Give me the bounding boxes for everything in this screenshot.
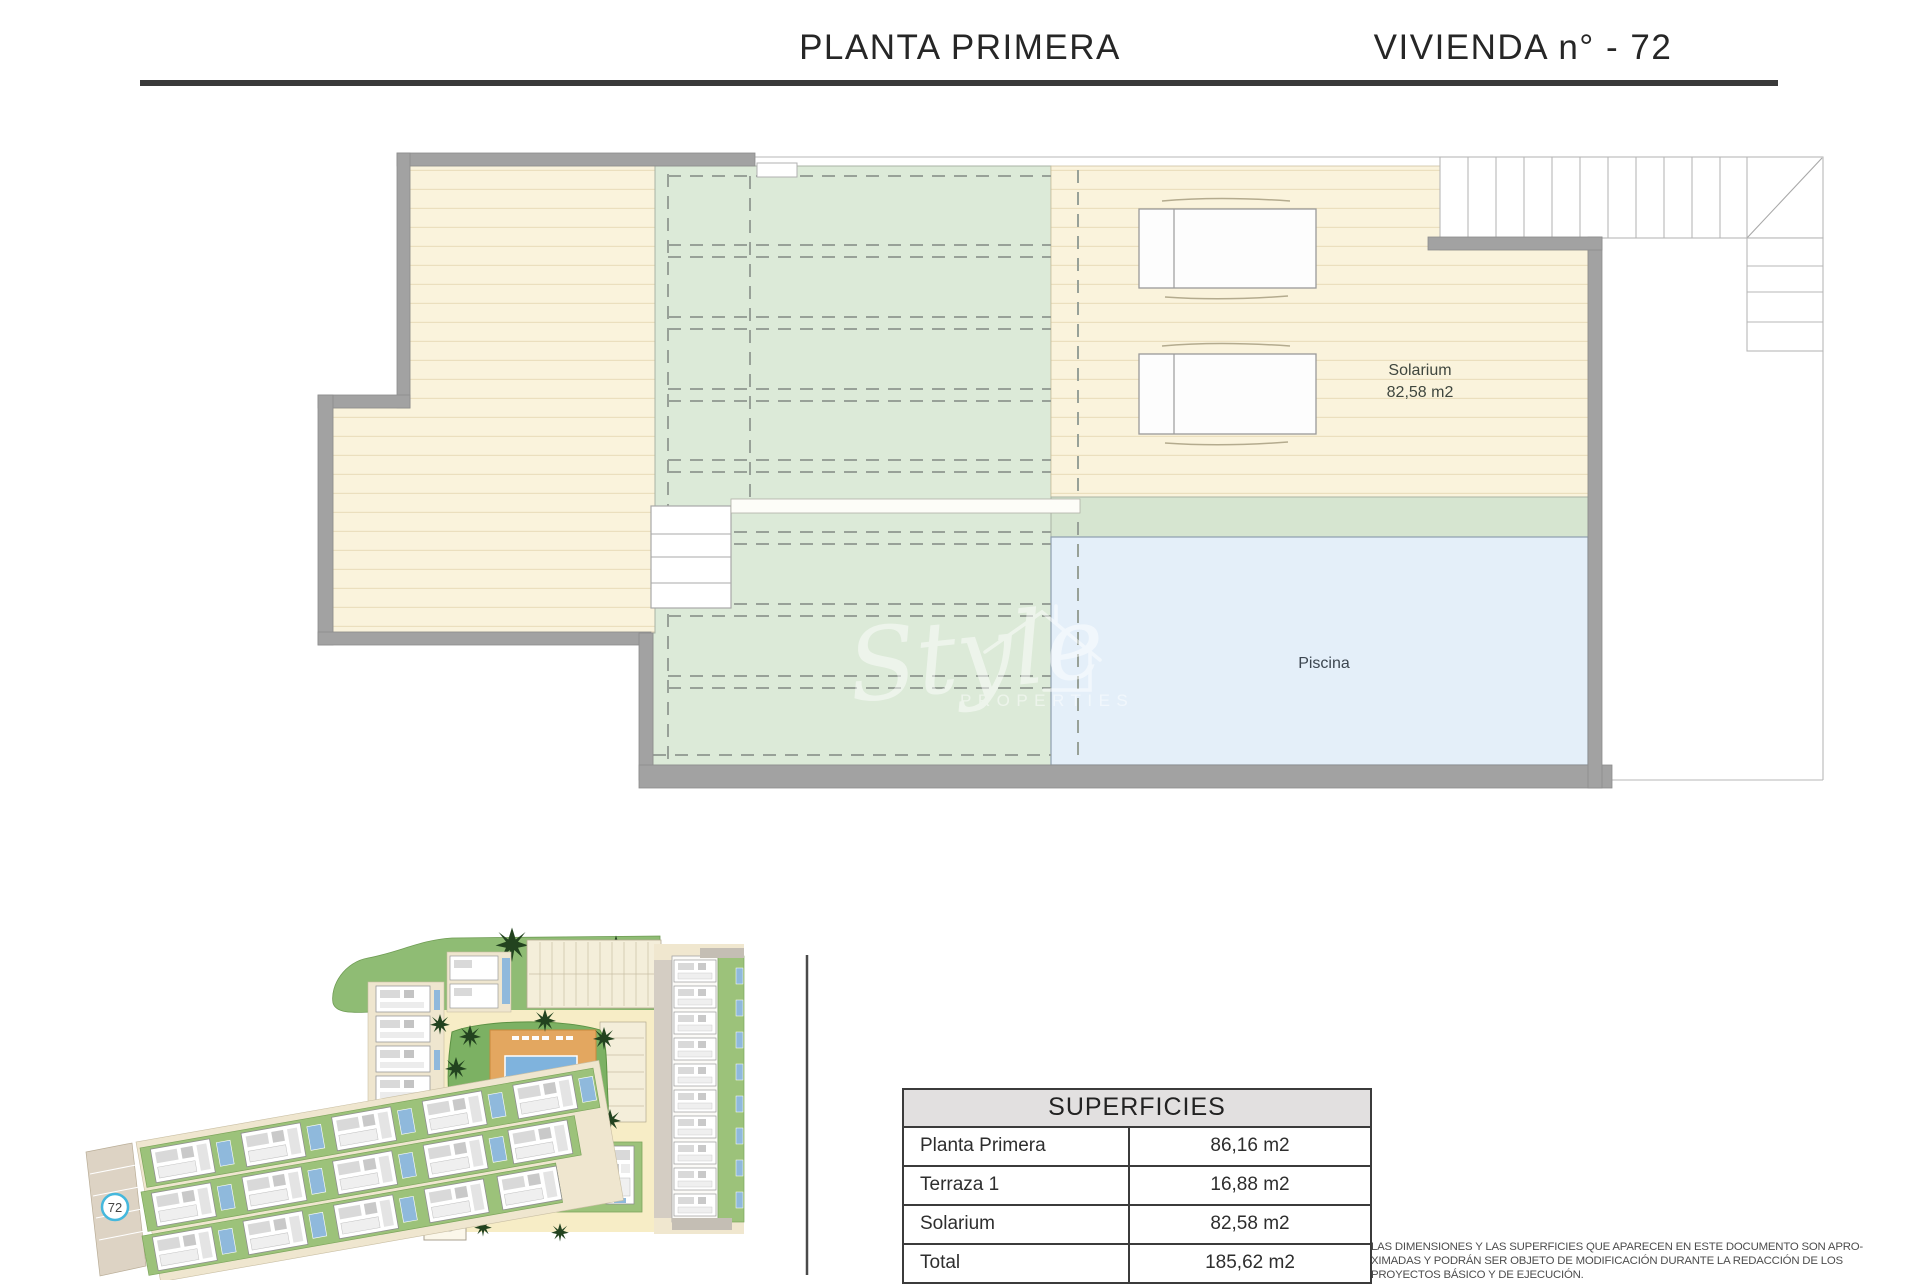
unit-72-label: 72 bbox=[108, 1200, 122, 1215]
top-step bbox=[757, 163, 797, 177]
floor-plan: Style PROPERTIES bbox=[318, 153, 1823, 788]
superficies-table: SUPERFICIES Planta Primera 86,16 m2 Terr… bbox=[902, 1088, 1372, 1284]
disclaimer: LAS DIMENSIONES Y LAS SUPERFICIES QUE AP… bbox=[1371, 1240, 1723, 1282]
table-row-value: 82,58 m2 bbox=[1128, 1204, 1370, 1243]
unit-72-marker: 72 bbox=[102, 1194, 128, 1220]
table-row-label: Solarium bbox=[904, 1204, 1128, 1243]
site-plan: 72 bbox=[86, 928, 807, 1281]
siteplan-top-cluster bbox=[447, 952, 511, 1012]
table-row-label: Total bbox=[904, 1243, 1128, 1282]
table-row-label: Terraza 1 bbox=[904, 1165, 1128, 1204]
table-row-value: 86,16 m2 bbox=[1128, 1128, 1370, 1165]
superficies-table-title: SUPERFICIES bbox=[904, 1090, 1370, 1128]
stairs-block bbox=[651, 506, 731, 608]
siteplan-parking-top bbox=[527, 940, 661, 1008]
table-row-value: 185,62 m2 bbox=[1128, 1243, 1370, 1282]
disclaimer-line: LAS DIMENSIONES Y LAS SUPERFICIES QUE AP… bbox=[1371, 1240, 1723, 1254]
table-row-value: 16,88 m2 bbox=[1128, 1165, 1370, 1204]
watermark: Style PROPERTIES bbox=[842, 583, 1134, 726]
table-row-label: Planta Primera bbox=[904, 1128, 1128, 1165]
pool-label: Piscina bbox=[1298, 655, 1350, 672]
siteplan-right-block bbox=[654, 944, 744, 1234]
walkway-strip bbox=[731, 499, 1080, 513]
pool bbox=[1051, 537, 1588, 765]
disclaimer-line: XIMADAS Y PODRÁN SER OBJETO DE MODIFICAC… bbox=[1371, 1254, 1723, 1268]
pool-green-band bbox=[1051, 497, 1588, 537]
solarium-label: Solarium bbox=[1388, 362, 1451, 379]
siteplan-left-block: 72 bbox=[86, 1060, 624, 1280]
watermark-caps: PROPERTIES bbox=[960, 691, 1134, 710]
solarium-area: 82,58 m2 bbox=[1387, 384, 1454, 401]
